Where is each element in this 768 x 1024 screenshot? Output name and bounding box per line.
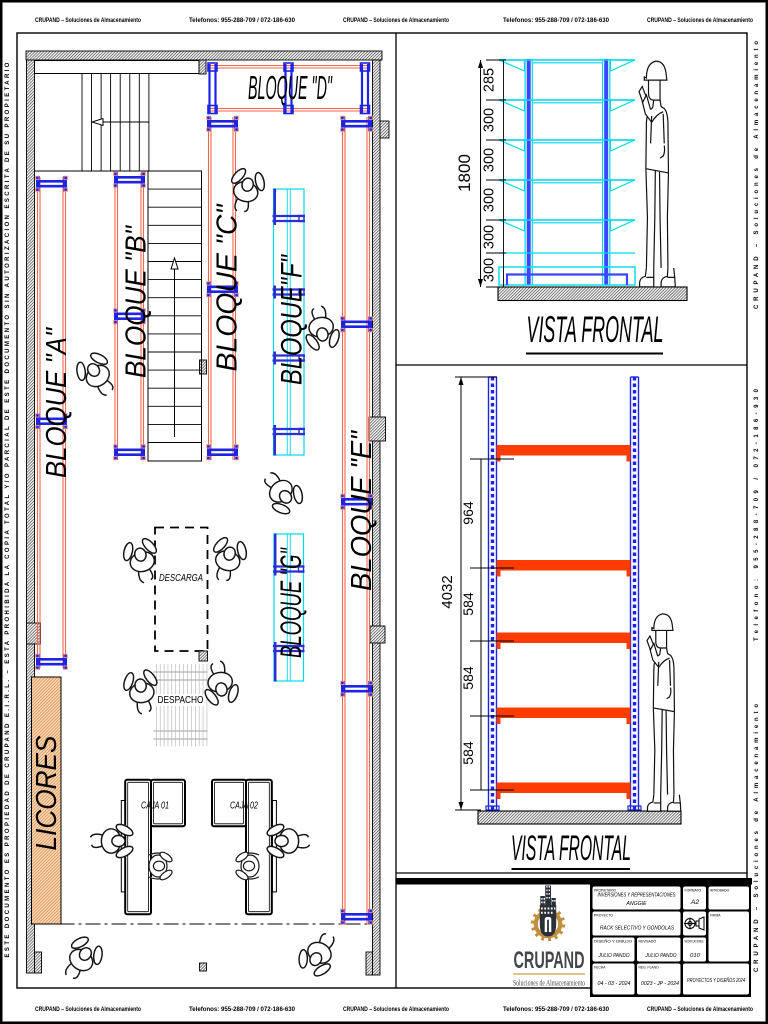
svg-text:DISEÑO Y DIBUJO: DISEÑO Y DIBUJO bbox=[594, 939, 632, 944]
svg-text:964: 964 bbox=[460, 501, 476, 525]
svg-text:RACK SELECTIVO Y GONDOLAS: RACK SELECTIVO Y GONDOLAS bbox=[600, 926, 674, 932]
svg-text:Soluciones de Almacenamiento: Soluciones de Almacenamiento bbox=[513, 979, 585, 988]
svg-text:CAJA 01: CAJA 01 bbox=[141, 801, 169, 812]
svg-text:BLOQUE "E": BLOQUE "E" bbox=[346, 429, 378, 591]
svg-text:MODIFICACIONES: MODIFICACIONES bbox=[685, 940, 704, 944]
svg-text:Telefonos: 955-288-709 / 072-1: Telefonos: 955-288-709 / 072-186-630 bbox=[503, 1006, 609, 1013]
svg-text:584: 584 bbox=[460, 741, 476, 765]
svg-text:BLOQUE "G": BLOQUE "G" bbox=[275, 547, 308, 658]
svg-text:BLOQUE "A": BLOQUE "A" bbox=[41, 326, 73, 478]
svg-text:DESPACHO: DESPACHO bbox=[158, 694, 204, 706]
svg-text:LICORES: LICORES bbox=[31, 735, 63, 851]
svg-text:BLOQUE"F": BLOQUE"F" bbox=[276, 254, 309, 385]
svg-text:VISTA FRONTAL: VISTA FRONTAL bbox=[527, 309, 664, 350]
svg-text:CRUPAND – Soluciones de Almace: CRUPAND – Soluciones de Almacenamiento bbox=[647, 17, 753, 24]
svg-text:INVERSIONES Y REPRESENTACIONES: INVERSIONES Y REPRESENTACIONES bbox=[598, 893, 676, 899]
svg-text:300: 300 bbox=[482, 258, 498, 282]
svg-text:REG. PLANO: REG. PLANO bbox=[639, 966, 659, 970]
svg-text:PROYECTO: PROYECTO bbox=[594, 914, 613, 918]
svg-text:CAJA 02: CAJA 02 bbox=[230, 801, 258, 812]
svg-text:CRUPAND: CRUPAND bbox=[514, 947, 585, 974]
svg-text:PROYECTOS Y DISEÑOS 2024: PROYECTOS Y DISEÑOS 2024 bbox=[687, 977, 745, 984]
svg-text:ANGGIE: ANGGIE bbox=[625, 901, 647, 907]
svg-text:285: 285 bbox=[482, 68, 498, 92]
svg-text:BLOQUE "B": BLOQUE "B" bbox=[121, 224, 153, 378]
svg-text:BLOQUE "D": BLOQUE "D" bbox=[248, 69, 333, 106]
svg-text:FECHA: FECHA bbox=[594, 966, 606, 970]
svg-text:REVISADO: REVISADO bbox=[639, 940, 657, 944]
svg-text:300: 300 bbox=[482, 108, 498, 132]
svg-text:CRUPAND – Soluciones de Almace: CRUPAND – Soluciones de Almacenamiento bbox=[647, 1006, 753, 1013]
svg-text:CRUPAND – Soluciones de Almace: CRUPAND – Soluciones de Almacenamiento bbox=[35, 1006, 141, 1013]
svg-text:APROBADO: APROBADO bbox=[710, 889, 730, 893]
svg-text:04 - 03 - 2024: 04 - 03 - 2024 bbox=[598, 981, 631, 987]
svg-text:JULIO PANDO: JULIO PANDO bbox=[598, 953, 630, 959]
svg-text:4032: 4032 bbox=[439, 575, 456, 608]
svg-text:FIRMA: FIRMA bbox=[710, 914, 721, 918]
svg-text:010: 010 bbox=[690, 953, 700, 959]
svg-text:Telefonos: 955-288-709 / 072-1: Telefonos: 955-288-709 / 072-186-630 bbox=[503, 17, 609, 24]
svg-text:300: 300 bbox=[482, 188, 498, 212]
svg-text:Telefonos: 955-288-709 / 072-1: Telefonos: 955-288-709 / 072-186-630 bbox=[189, 1006, 295, 1013]
svg-text:CRUPAND – Soluciones de Almace: CRUPAND – Soluciones de Almacenamiento bbox=[343, 17, 449, 24]
svg-text:BLOQUE "C": BLOQUE "C" bbox=[212, 203, 244, 372]
svg-text:A2: A2 bbox=[690, 899, 700, 906]
svg-text:JULIO PANDO: JULIO PANDO bbox=[645, 953, 677, 959]
svg-text:0023 - JP - 2024: 0023 - JP - 2024 bbox=[641, 981, 679, 987]
svg-text:ESTE DOCUMENTO ES PROPIEDAD DE: ESTE DOCUMENTO ES PROPIEDAD DE CRUPAND E… bbox=[5, 62, 11, 957]
svg-text:FORMATO: FORMATO bbox=[685, 889, 702, 893]
svg-text:300: 300 bbox=[482, 148, 498, 172]
svg-text:CRUPAND – Soluciones de Almace: CRUPAND – Soluciones de Almacenamiento bbox=[35, 17, 141, 24]
svg-text:CRUPAND – Soluciones de Almace: CRUPAND – Soluciones de Almacenamiento bbox=[343, 1006, 449, 1013]
svg-text:584: 584 bbox=[460, 592, 476, 616]
svg-text:1800: 1800 bbox=[455, 154, 474, 192]
svg-text:300: 300 bbox=[482, 225, 498, 249]
svg-text:584: 584 bbox=[460, 666, 476, 690]
svg-text:DESCARGA: DESCARGA bbox=[159, 572, 203, 584]
svg-text:VISTA FRONTAL: VISTA FRONTAL bbox=[511, 829, 631, 868]
svg-text:Telefonos: 955-288-709 / 072-1: Telefonos: 955-288-709 / 072-186-630 bbox=[189, 17, 295, 24]
